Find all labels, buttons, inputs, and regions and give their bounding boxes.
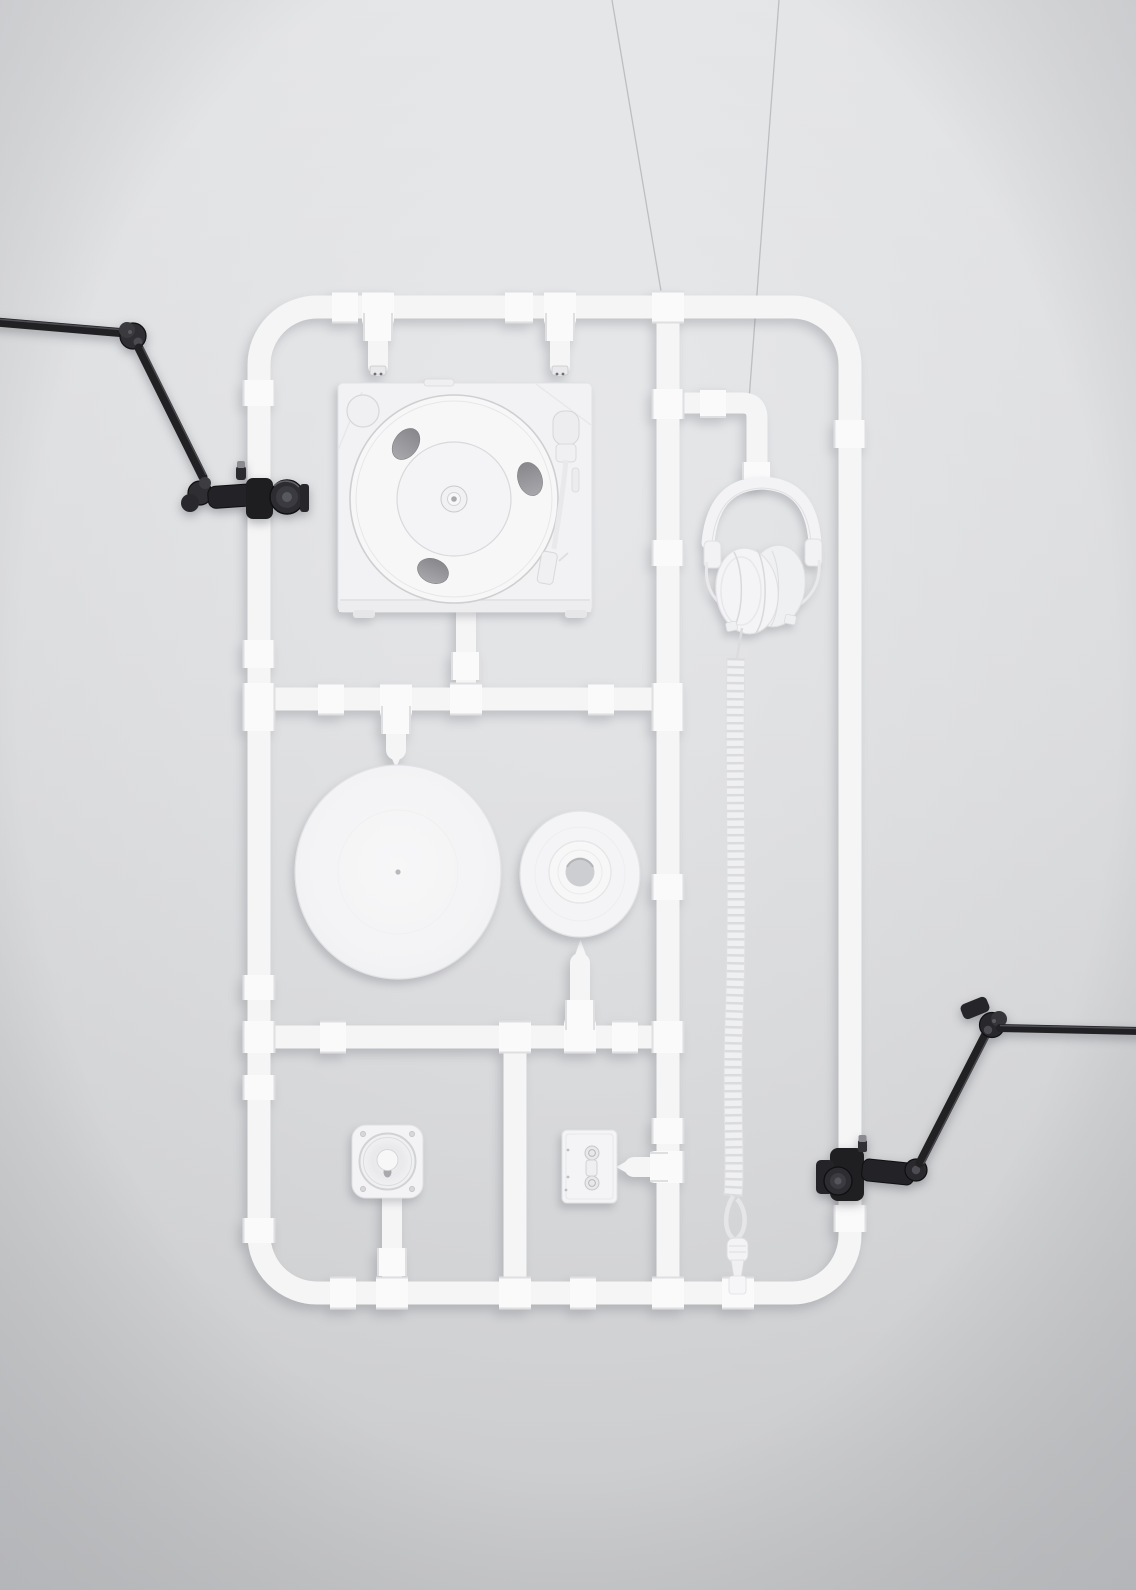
artwork-photo: [0, 0, 1136, 1590]
vignette-overlay: [0, 0, 1136, 1590]
photo-stage: [0, 0, 1136, 1590]
left-clamp-jaw: [246, 478, 273, 519]
left-clamp-stud: [236, 466, 246, 480]
